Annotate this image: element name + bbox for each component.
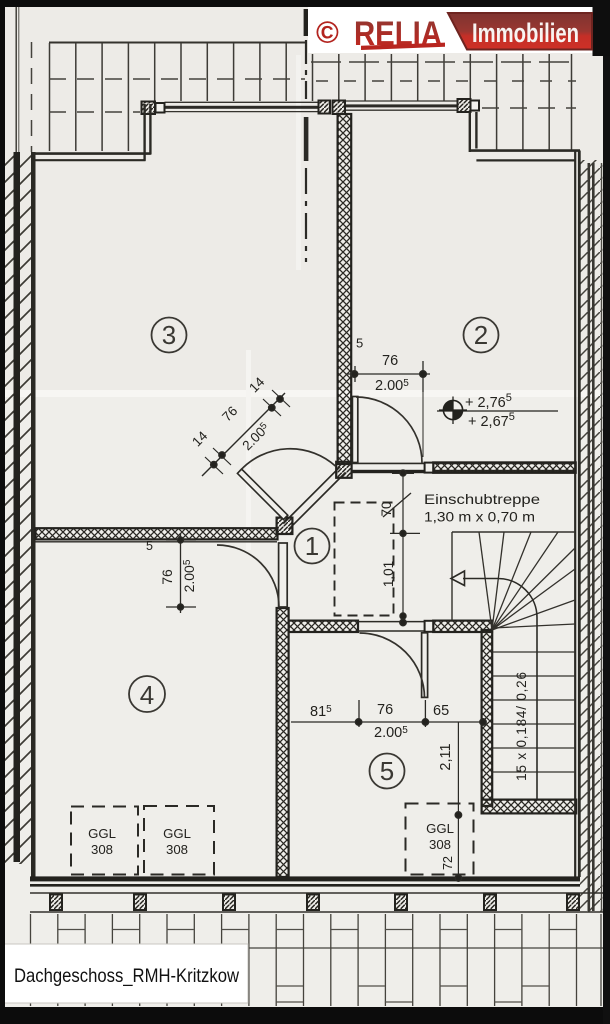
svg-text:1,30 m x 0,70 m: 1,30 m x 0,70 m: [424, 509, 535, 525]
svg-text:308: 308: [429, 837, 451, 852]
svg-text:5: 5: [146, 539, 153, 553]
svg-text:©: ©: [316, 15, 339, 50]
svg-text:GGL: GGL: [88, 826, 116, 841]
svg-text:GGL: GGL: [426, 821, 454, 836]
svg-text:5: 5: [356, 336, 363, 351]
svg-text:Einschubtreppe: Einschubtreppe: [424, 491, 540, 507]
svg-text:2,11: 2,11: [438, 743, 454, 770]
svg-text:15 x 0,184/ 0,26: 15 x 0,184/ 0,26: [514, 671, 529, 781]
svg-text:+ 2,765: + 2,765: [465, 392, 512, 411]
svg-text:1: 1: [305, 531, 319, 561]
svg-text:3: 3: [162, 320, 176, 350]
svg-text:1,01: 1,01: [381, 561, 396, 587]
svg-text:5: 5: [380, 756, 394, 786]
svg-text:4: 4: [140, 680, 154, 710]
svg-text:72: 72: [441, 856, 455, 870]
svg-text:GGL: GGL: [163, 826, 191, 841]
svg-text:76: 76: [159, 569, 175, 585]
svg-text:308: 308: [166, 842, 188, 857]
svg-text:2: 2: [474, 320, 488, 350]
svg-text:65: 65: [433, 703, 449, 719]
svg-text:Dachgeschoss_RMH-Kritzkow: Dachgeschoss_RMH-Kritzkow: [14, 965, 240, 987]
svg-text:308: 308: [91, 842, 113, 857]
svg-text:76: 76: [377, 702, 393, 718]
svg-text:70: 70: [379, 501, 394, 516]
svg-text:76: 76: [382, 353, 398, 369]
svg-text:Immobilien: Immobilien: [472, 18, 579, 48]
svg-text:+ 2,675: + 2,675: [468, 411, 515, 430]
